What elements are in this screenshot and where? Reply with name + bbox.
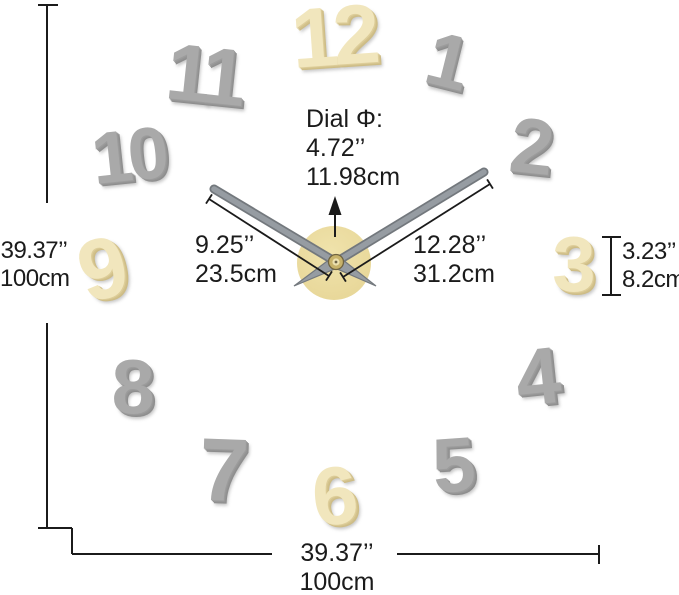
height-dimension-label: 39.37’’ 100cm	[0, 237, 68, 293]
clock-number-2: 2	[506, 105, 557, 187]
numeral-height-dimension-label: 3.23’’ 8.2cm	[622, 238, 679, 294]
numeral-height-cm: 8.2cm	[622, 266, 679, 294]
dial-inches: 4.72’’	[306, 134, 400, 163]
clock-number-1: 1	[418, 20, 477, 104]
height-cm: 100cm	[0, 265, 68, 293]
clock-number-10: 10	[88, 116, 168, 196]
clock-number-7: 7	[198, 425, 251, 516]
minute-hand-counterweight	[333, 257, 376, 286]
dial-dimension-label: Dial Φ: 4.72’’ 11.98cm	[306, 105, 400, 192]
dial-label: Dial Φ:	[306, 105, 400, 134]
height-inches: 39.37’’	[0, 237, 68, 265]
numeral-height-inches: 3.23’’	[622, 238, 679, 266]
width-dimension-label: 39.37’’ 100cm	[287, 539, 387, 595]
clock-number-8: 8	[112, 350, 155, 427]
dial-arrow	[329, 196, 342, 237]
product-diagram: 12 1 2 3 4 5 6 7 8 9 10 11	[0, 0, 679, 595]
numeral-height-bracket	[602, 237, 621, 295]
clock-number-4: 4	[512, 335, 565, 419]
minute-hand-dimension-label: 12.28’’ 31.2cm	[413, 231, 495, 289]
dial-cm: 11.98cm	[306, 163, 400, 192]
center-pin	[329, 255, 344, 270]
clock-number-5: 5	[430, 426, 478, 506]
width-inches: 39.37’’	[287, 539, 387, 568]
hour-hand-counterweight	[294, 257, 339, 286]
width-cm: 100cm	[287, 568, 387, 595]
clock-number-9: 9	[69, 221, 136, 316]
clock-number-11: 11	[163, 31, 246, 118]
hour-hand-inches: 9.25’’	[195, 231, 277, 260]
clock-dial	[297, 226, 371, 300]
clock-number-3: 3	[552, 225, 595, 303]
minute-hand-cm: 31.2cm	[413, 260, 495, 289]
minute-hand-inches: 12.28’’	[413, 231, 495, 260]
clock-number-12: 12	[288, 0, 377, 81]
clock-number-6: 6	[308, 454, 362, 540]
hour-hand-dimension-label: 9.25’’ 23.5cm	[195, 231, 277, 289]
hour-hand-cm: 23.5cm	[195, 260, 277, 289]
